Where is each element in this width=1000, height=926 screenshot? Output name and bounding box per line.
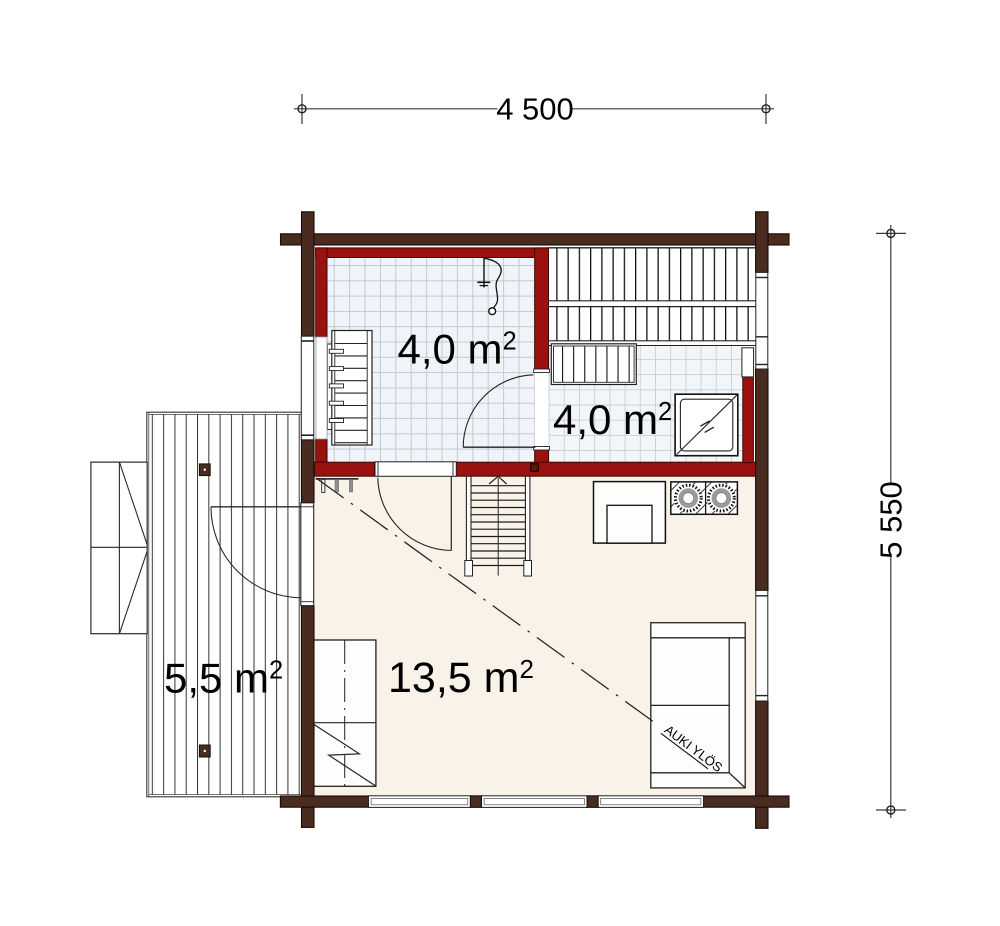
svg-text:5 550: 5 550 xyxy=(874,481,909,559)
svg-text:4,0 m2: 4,0 m2 xyxy=(398,326,517,373)
svg-text:5,5 m2: 5,5 m2 xyxy=(164,655,283,702)
svg-text:4,0 m2: 4,0 m2 xyxy=(553,396,672,443)
svg-text:4 500: 4 500 xyxy=(496,92,574,127)
svg-text:13,5 m2: 13,5 m2 xyxy=(388,654,534,702)
